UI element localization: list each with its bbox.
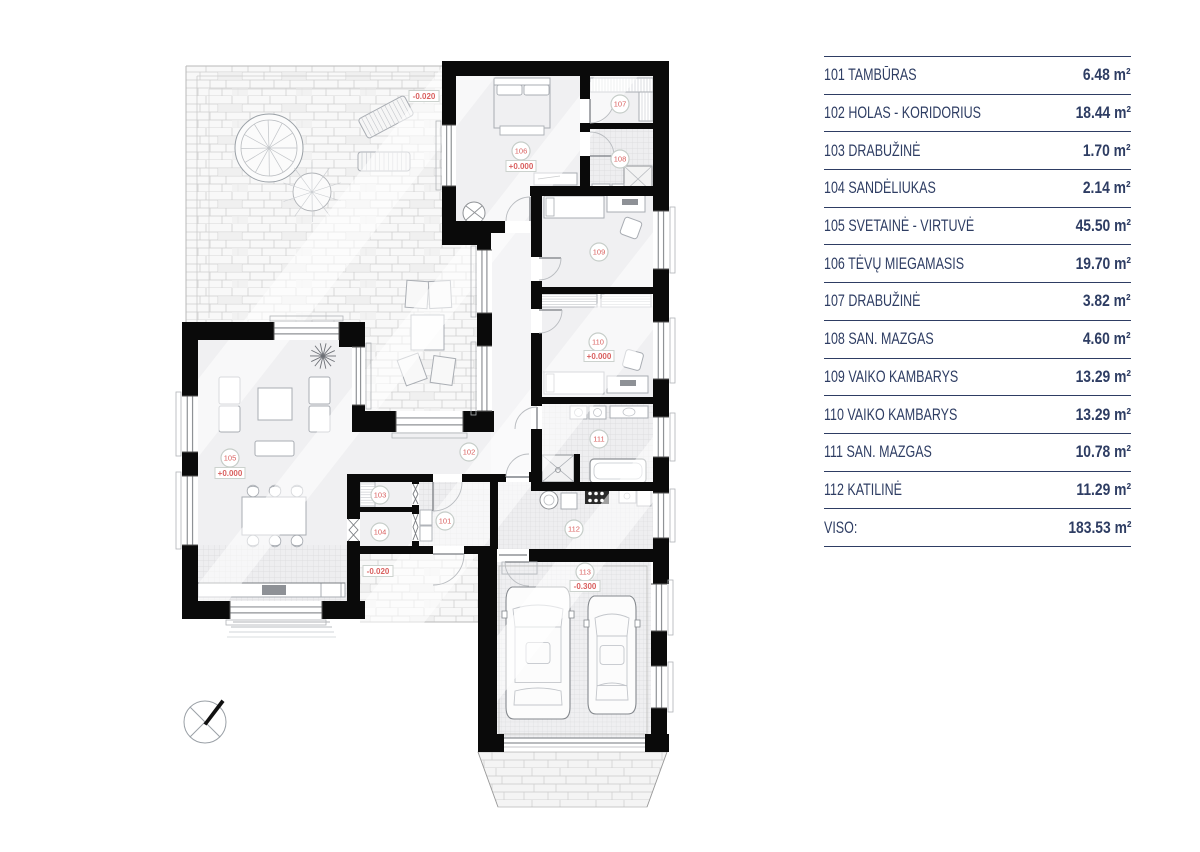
svg-text:110: 110 <box>592 338 604 347</box>
svg-text:109: 109 <box>593 248 606 257</box>
svg-text:104: 104 <box>374 528 387 537</box>
svg-text:112: 112 <box>568 525 580 534</box>
svg-text:108: 108 <box>614 155 627 164</box>
svg-text:+0.000: +0.000 <box>218 469 243 478</box>
svg-text:+0.000: +0.000 <box>587 352 612 361</box>
svg-text:101: 101 <box>439 517 452 526</box>
svg-text:105: 105 <box>224 454 237 463</box>
svg-text:-0.020: -0.020 <box>413 92 436 101</box>
svg-text:103: 103 <box>374 491 387 500</box>
svg-text:102: 102 <box>463 448 476 457</box>
svg-text:111: 111 <box>593 435 604 444</box>
svg-text:106: 106 <box>515 147 528 156</box>
svg-text:+0.000: +0.000 <box>509 162 534 171</box>
svg-text:107: 107 <box>614 100 627 109</box>
svg-text:-0.020: -0.020 <box>367 567 390 576</box>
svg-text:113: 113 <box>579 568 591 577</box>
svg-text:-0.300: -0.300 <box>574 582 597 591</box>
